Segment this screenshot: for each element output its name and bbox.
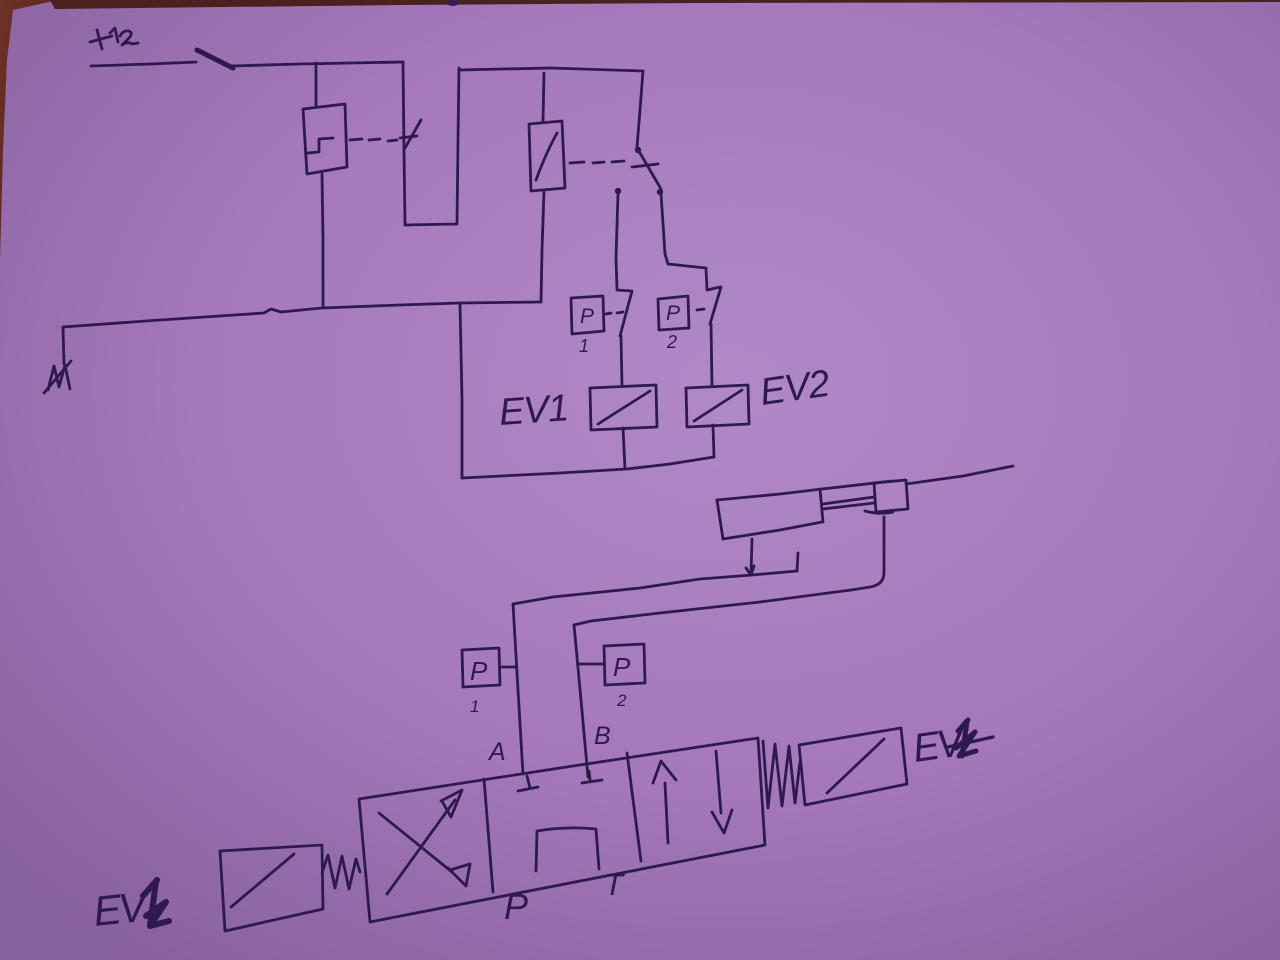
svg-text:P: P xyxy=(613,652,631,682)
svg-text:P: P xyxy=(580,305,594,328)
svg-text:P: P xyxy=(504,886,528,927)
svg-text:P: P xyxy=(470,656,488,686)
svg-text:2: 2 xyxy=(666,332,677,352)
svg-text:1: 1 xyxy=(470,697,479,716)
svg-text:1: 1 xyxy=(579,336,589,356)
svg-text:2: 2 xyxy=(616,691,627,710)
svg-text:B: B xyxy=(594,722,611,750)
svg-text:EV1: EV1 xyxy=(498,387,570,434)
svg-text:T: T xyxy=(604,867,625,902)
svg-text:P: P xyxy=(666,302,680,325)
svg-text:A: A xyxy=(487,738,506,766)
